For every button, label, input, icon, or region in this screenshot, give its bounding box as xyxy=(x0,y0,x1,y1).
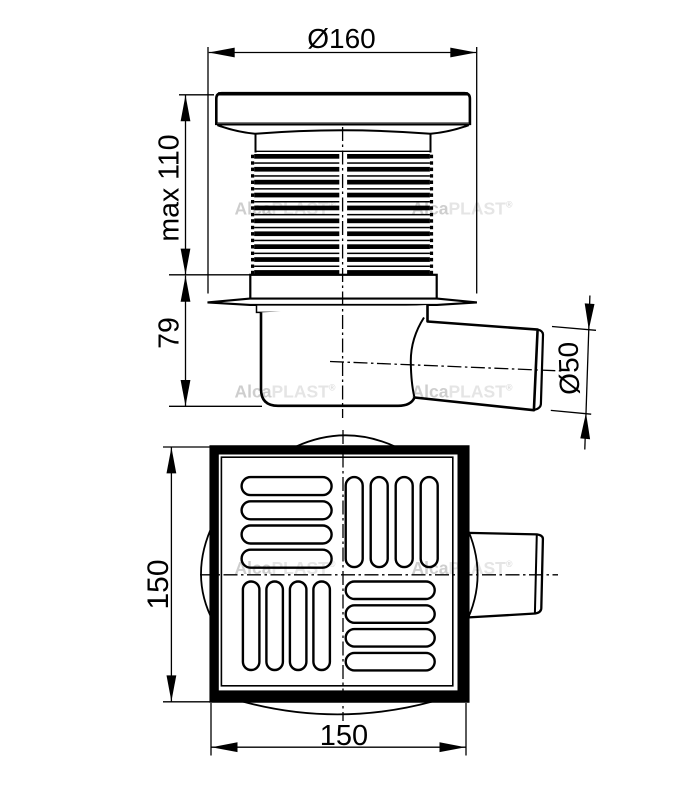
svg-text:AlcaPLAST®: AlcaPLAST® xyxy=(235,199,336,219)
svg-text:150: 150 xyxy=(320,720,368,752)
svg-text:AlcaPLAST®: AlcaPLAST® xyxy=(412,558,513,578)
svg-text:AlcaPLAST®: AlcaPLAST® xyxy=(235,382,336,402)
svg-text:AlcaPLAST®: AlcaPLAST® xyxy=(235,558,336,578)
svg-text:max 110: max 110 xyxy=(154,134,186,241)
svg-text:AlcaPLAST®: AlcaPLAST® xyxy=(412,199,513,219)
svg-text:AlcaPLAST®: AlcaPLAST® xyxy=(412,382,513,402)
svg-text:79: 79 xyxy=(154,317,186,349)
svg-text:Ø50: Ø50 xyxy=(553,341,586,395)
svg-text:150: 150 xyxy=(142,559,175,609)
svg-text:Ø160: Ø160 xyxy=(307,23,376,54)
